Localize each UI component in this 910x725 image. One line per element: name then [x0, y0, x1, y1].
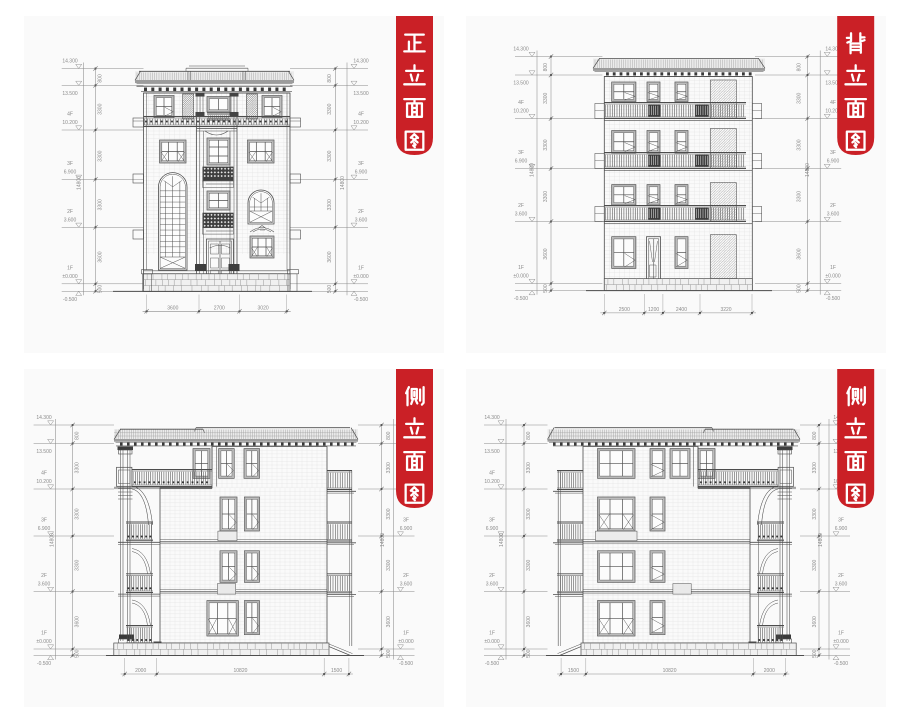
svg-text:3300: 3300: [526, 559, 532, 570]
svg-text:800: 800: [526, 431, 532, 440]
svg-text:-0.500: -0.500: [354, 297, 368, 303]
svg-text:3300: 3300: [327, 199, 333, 210]
svg-text:±0.000: ±0.000: [398, 639, 413, 645]
svg-text:800: 800: [327, 74, 333, 83]
svg-text:14800: 14800: [50, 533, 56, 547]
svg-text:2700: 2700: [214, 306, 225, 312]
svg-text:14800: 14800: [805, 163, 811, 177]
svg-text:500: 500: [526, 649, 532, 658]
svg-text:1500: 1500: [331, 668, 342, 674]
svg-text:3020: 3020: [258, 306, 269, 312]
svg-text:3300: 3300: [812, 508, 818, 519]
svg-text:3.600: 3.600: [486, 582, 499, 588]
svg-text:3F: 3F: [830, 150, 836, 156]
svg-text:14.300: 14.300: [62, 59, 78, 65]
svg-text:14800: 14800: [77, 176, 83, 190]
svg-text:3300: 3300: [98, 199, 104, 210]
svg-text:6.900: 6.900: [835, 526, 848, 532]
svg-text:3220: 3220: [720, 307, 731, 313]
svg-text:3300: 3300: [526, 462, 532, 473]
svg-text:14800: 14800: [818, 533, 824, 547]
svg-text:10.200: 10.200: [484, 479, 500, 485]
svg-text:10.200: 10.200: [353, 120, 369, 126]
svg-text:500: 500: [543, 284, 549, 293]
svg-text:13.500: 13.500: [484, 449, 500, 455]
svg-text:1500: 1500: [568, 668, 579, 674]
svg-text:2000: 2000: [135, 668, 146, 674]
svg-text:-0.500: -0.500: [485, 661, 499, 667]
svg-text:3600: 3600: [327, 251, 333, 262]
svg-text:2F: 2F: [830, 203, 836, 209]
svg-text:14800: 14800: [340, 176, 346, 190]
svg-text:3600: 3600: [75, 616, 81, 627]
svg-text:13.500: 13.500: [513, 81, 529, 87]
svg-text:2F: 2F: [838, 573, 844, 579]
svg-text:10820: 10820: [663, 668, 677, 674]
svg-text:3600: 3600: [812, 616, 818, 627]
svg-text:10.200: 10.200: [36, 479, 52, 485]
svg-text:3F: 3F: [403, 518, 409, 524]
svg-text:3300: 3300: [386, 462, 392, 473]
svg-text:3F: 3F: [67, 161, 73, 167]
svg-text:3300: 3300: [75, 559, 81, 570]
svg-text:1F: 1F: [489, 631, 495, 637]
svg-text:500: 500: [812, 649, 818, 658]
svg-text:-0.500: -0.500: [826, 296, 840, 302]
svg-text:14.300: 14.300: [36, 415, 52, 421]
svg-text:500: 500: [386, 649, 392, 658]
svg-text:13.500: 13.500: [62, 91, 78, 97]
svg-text:1F: 1F: [67, 265, 73, 271]
svg-text:±0.000: ±0.000: [36, 639, 51, 645]
svg-text:3.600: 3.600: [835, 582, 848, 588]
svg-text:3600: 3600: [167, 306, 178, 312]
svg-text:-0.500: -0.500: [37, 661, 51, 667]
svg-text:3300: 3300: [812, 559, 818, 570]
svg-text:3F: 3F: [358, 161, 364, 167]
svg-text:3300: 3300: [797, 139, 803, 150]
svg-text:3300: 3300: [543, 139, 549, 150]
svg-text:3300: 3300: [526, 508, 532, 519]
svg-text:14.300: 14.300: [484, 415, 500, 421]
svg-text:1F: 1F: [403, 631, 409, 637]
svg-text:2400: 2400: [676, 307, 687, 313]
svg-text:3600: 3600: [386, 616, 392, 627]
svg-text:3300: 3300: [543, 92, 549, 103]
svg-text:2000: 2000: [764, 668, 775, 674]
svg-text:3.600: 3.600: [400, 582, 413, 588]
svg-text:3300: 3300: [75, 508, 81, 519]
svg-text:3.600: 3.600: [355, 217, 368, 223]
svg-text:14800: 14800: [530, 163, 536, 177]
svg-text:-0.500: -0.500: [399, 661, 413, 667]
svg-text:6.900: 6.900: [486, 526, 499, 532]
svg-text:2500: 2500: [619, 307, 630, 313]
svg-text:3300: 3300: [327, 103, 333, 114]
svg-text:4F: 4F: [67, 112, 73, 118]
svg-text:±0.000: ±0.000: [825, 274, 840, 280]
svg-text:10.200: 10.200: [62, 120, 78, 126]
svg-text:3300: 3300: [98, 150, 104, 161]
svg-text:2F: 2F: [358, 209, 364, 215]
svg-text:6.900: 6.900: [400, 526, 413, 532]
svg-text:4F: 4F: [358, 112, 364, 118]
svg-text:3600: 3600: [98, 251, 104, 262]
svg-text:4F: 4F: [489, 471, 495, 477]
svg-text:1F: 1F: [838, 631, 844, 637]
svg-text:800: 800: [543, 63, 549, 72]
svg-text:±0.000: ±0.000: [833, 639, 848, 645]
svg-text:1F: 1F: [518, 265, 524, 271]
svg-text:10.200: 10.200: [513, 109, 529, 115]
svg-text:3300: 3300: [386, 559, 392, 570]
svg-text:-0.500: -0.500: [834, 661, 848, 667]
svg-text:3300: 3300: [98, 103, 104, 114]
svg-text:3600: 3600: [526, 616, 532, 627]
svg-text:800: 800: [98, 74, 104, 83]
svg-text:3300: 3300: [797, 92, 803, 103]
svg-text:3300: 3300: [797, 191, 803, 202]
svg-text:3.600: 3.600: [827, 212, 840, 218]
svg-text:800: 800: [797, 63, 803, 72]
svg-text:500: 500: [75, 649, 81, 658]
svg-text:13.500: 13.500: [36, 449, 52, 455]
svg-text:1F: 1F: [358, 265, 364, 271]
svg-text:500: 500: [327, 285, 333, 294]
svg-text:3300: 3300: [327, 150, 333, 161]
svg-text:2F: 2F: [67, 209, 73, 215]
svg-text:6.900: 6.900: [64, 169, 77, 175]
svg-text:500: 500: [797, 284, 803, 293]
svg-text:500: 500: [98, 285, 104, 294]
svg-text:14800: 14800: [380, 533, 386, 547]
svg-text:-0.500: -0.500: [63, 297, 77, 303]
svg-text:3300: 3300: [386, 508, 392, 519]
svg-text:4F: 4F: [41, 471, 47, 477]
svg-text:±0.000: ±0.000: [62, 274, 77, 280]
svg-text:4F: 4F: [518, 100, 524, 106]
svg-text:3300: 3300: [75, 462, 81, 473]
svg-text:±0.000: ±0.000: [484, 639, 499, 645]
svg-text:3F: 3F: [518, 150, 524, 156]
svg-text:±0.000: ±0.000: [513, 274, 528, 280]
svg-text:6.900: 6.900: [355, 169, 368, 175]
svg-text:1F: 1F: [41, 631, 47, 637]
svg-text:6.900: 6.900: [515, 159, 528, 165]
svg-text:3.600: 3.600: [38, 582, 51, 588]
svg-text:2F: 2F: [403, 573, 409, 579]
svg-text:2F: 2F: [489, 573, 495, 579]
svg-text:6.900: 6.900: [827, 159, 840, 165]
svg-text:2F: 2F: [518, 203, 524, 209]
svg-text:3.600: 3.600: [64, 217, 77, 223]
svg-text:3600: 3600: [797, 248, 803, 259]
svg-text:6.900: 6.900: [38, 526, 51, 532]
svg-text:800: 800: [812, 431, 818, 440]
svg-text:3F: 3F: [838, 518, 844, 524]
svg-text:1200: 1200: [648, 307, 659, 313]
svg-text:10820: 10820: [233, 668, 247, 674]
svg-text:1F: 1F: [830, 265, 836, 271]
svg-text:14.300: 14.300: [513, 47, 529, 53]
svg-text:3F: 3F: [489, 518, 495, 524]
svg-text:800: 800: [75, 431, 81, 440]
svg-text:14.300: 14.300: [353, 59, 369, 65]
svg-text:3300: 3300: [543, 191, 549, 202]
svg-text:3600: 3600: [543, 248, 549, 259]
svg-text:14800: 14800: [499, 533, 505, 547]
svg-text:3300: 3300: [812, 462, 818, 473]
svg-text:13.500: 13.500: [353, 91, 369, 97]
svg-text:2F: 2F: [41, 573, 47, 579]
svg-text:3.600: 3.600: [515, 212, 528, 218]
svg-text:±0.000: ±0.000: [353, 274, 368, 280]
svg-text:4F: 4F: [830, 100, 836, 106]
svg-text:3F: 3F: [41, 518, 47, 524]
svg-text:800: 800: [386, 431, 392, 440]
svg-text:-0.500: -0.500: [514, 296, 528, 302]
